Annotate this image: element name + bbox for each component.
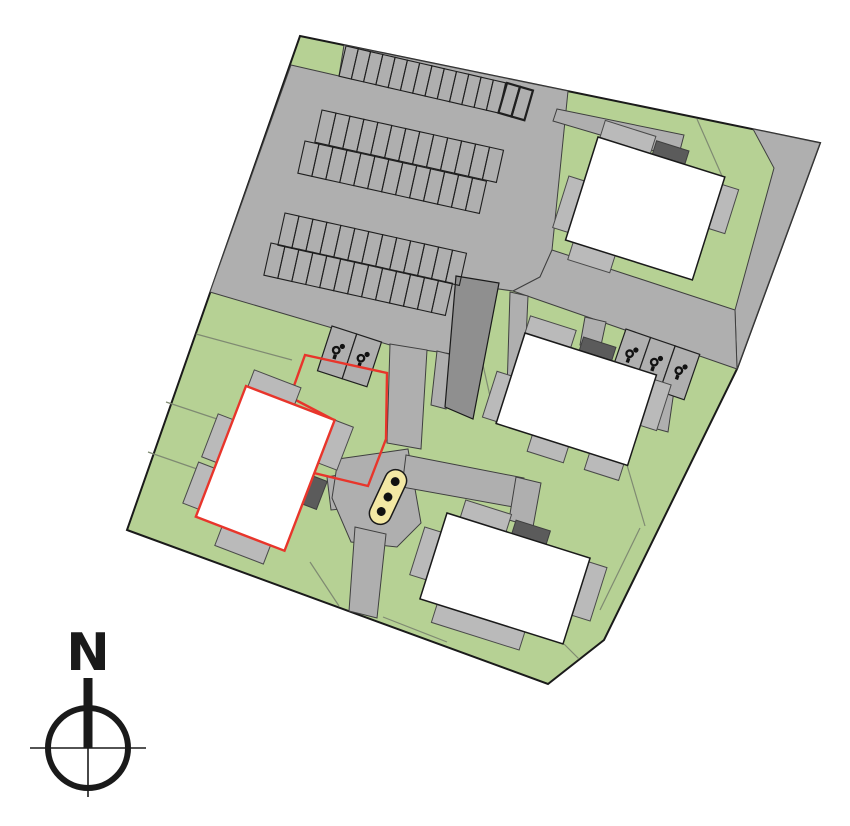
north-arrow-compass: N xyxy=(30,623,146,797)
central-path xyxy=(387,344,427,449)
site-plan-page: N xyxy=(0,0,850,826)
site-plan-drawing: N xyxy=(0,0,850,826)
north-label: N xyxy=(66,623,110,683)
